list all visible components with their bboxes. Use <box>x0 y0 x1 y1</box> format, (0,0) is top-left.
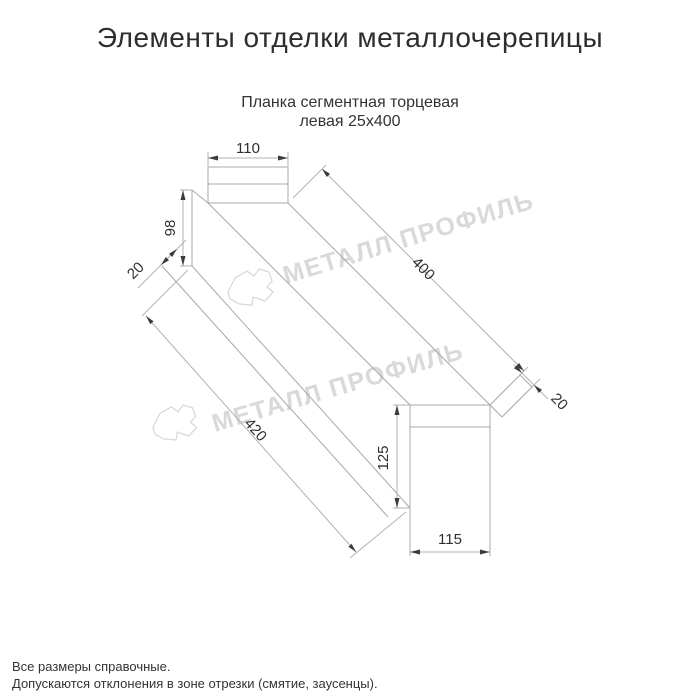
footnote-2: Допускаются отклонения в зоне отрезки (с… <box>12 675 378 692</box>
dimension-label: 125 <box>375 445 392 470</box>
dimension-label: 400 <box>408 254 438 284</box>
watermark-text: МЕТАЛЛ ПРОФИЛЬ <box>280 187 538 290</box>
technical-drawing: МЕТАЛЛ ПРОФИЛЬ МЕТАЛЛ ПРОФИЛЬ <box>0 0 700 700</box>
left-end-top-connector <box>192 190 208 203</box>
dimension-125: 125 <box>375 405 410 508</box>
dimension-label: 98 <box>162 220 179 237</box>
brand-cloud-logo-icon <box>228 269 273 305</box>
watermark-upper: МЕТАЛЛ ПРОФИЛЬ <box>228 187 538 305</box>
dimension-label: 110 <box>236 140 260 157</box>
arrowhead <box>181 256 186 266</box>
arrowhead <box>480 550 490 555</box>
arrowhead <box>395 498 400 508</box>
footnote-1: Все размеры справочные. <box>12 658 378 675</box>
top-flange <box>208 167 288 203</box>
dimension-98: 98 <box>162 190 192 266</box>
dimension-label: 20 <box>547 390 571 414</box>
dimension-label: 115 <box>438 531 462 548</box>
dimension-115: 115 <box>410 531 490 555</box>
page: Элементы отделки металлочерепицы Планка … <box>0 0 700 700</box>
dimension-20-right: 20 <box>506 365 571 414</box>
dimension-label: 20 <box>124 259 148 283</box>
brand-cloud-logo-icon <box>153 405 197 440</box>
right-end-hem <box>490 375 532 417</box>
arrowhead <box>181 190 186 200</box>
footnotes: Все размеры справочные. Допускаются откл… <box>12 658 378 692</box>
arrowhead <box>208 156 218 161</box>
extension-line <box>293 165 326 198</box>
arrowhead <box>410 550 420 555</box>
extension-line <box>350 512 406 558</box>
dimension-110: 110 <box>208 140 288 166</box>
watermark-lower: МЕТАЛЛ ПРОФИЛЬ <box>153 337 467 440</box>
extension-line <box>495 367 528 400</box>
arrowhead <box>395 405 400 415</box>
arrowhead <box>278 156 288 161</box>
